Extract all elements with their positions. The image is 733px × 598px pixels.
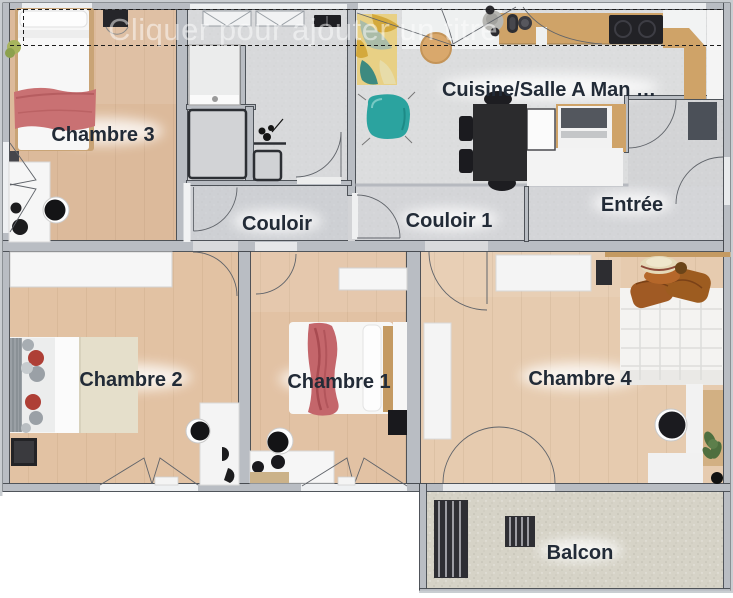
svg-text:Couloir 1: Couloir 1 (406, 210, 493, 232)
svg-text:Chambre 1: Chambre 1 (287, 371, 390, 393)
svg-text:Chambre 2: Chambre 2 (79, 369, 182, 391)
svg-text:Chambre 3: Chambre 3 (51, 124, 154, 146)
svg-text:Entrée: Entrée (601, 194, 663, 216)
svg-text:Cliquer pour ajouter un titre: Cliquer pour ajouter un titre (108, 12, 498, 47)
svg-text:Cuisine/Salle A Man …: Cuisine/Salle A Man … (442, 79, 656, 101)
svg-text:Couloir: Couloir (242, 213, 312, 235)
svg-text:Chambre 4: Chambre 4 (528, 368, 632, 390)
svg-text:Balcon: Balcon (547, 542, 614, 564)
